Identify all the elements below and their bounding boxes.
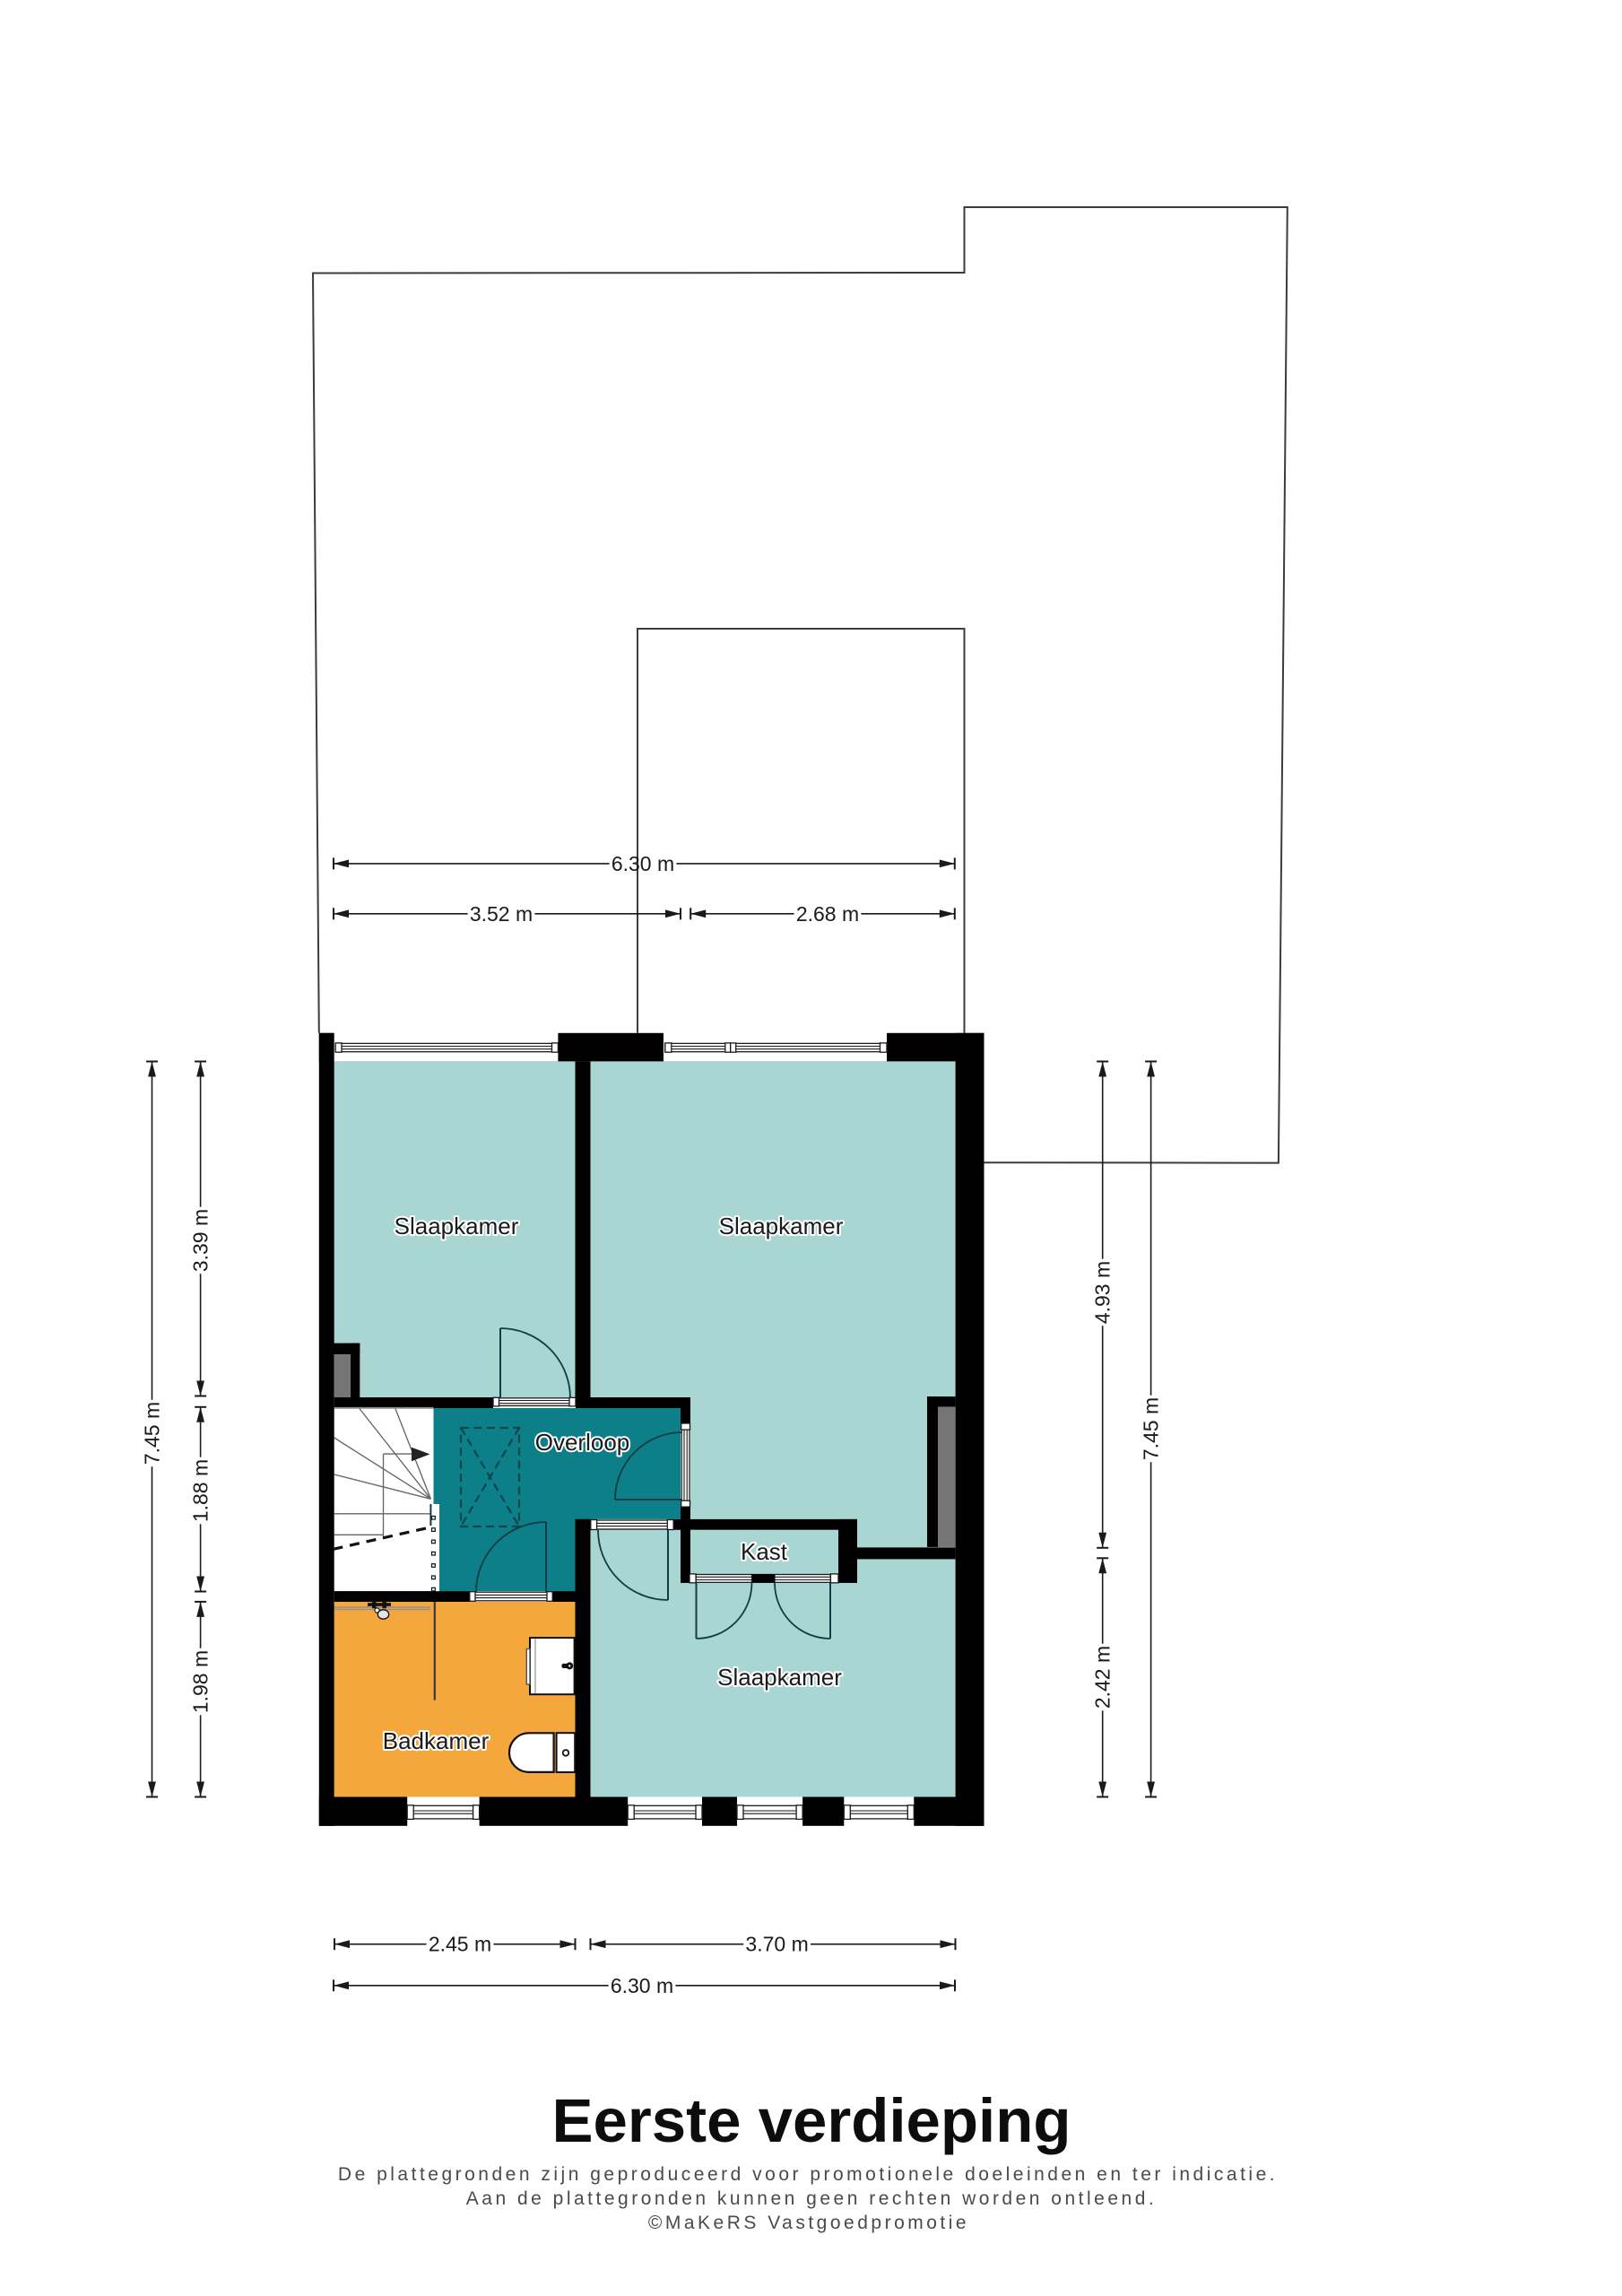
svg-text:Slaapkamer: Slaapkamer [395,1213,519,1239]
svg-text:Slaapkamer: Slaapkamer [717,1664,842,1691]
svg-text:6.30 m: 6.30 m [612,852,674,875]
svg-text:1.88 m: 1.88 m [189,1459,213,1522]
svg-text:1.98 m: 1.98 m [189,1650,213,1713]
svg-text:2.68 m: 2.68 m [796,902,859,926]
svg-text:6.30 m: 6.30 m [611,1974,673,1997]
svg-text:3.52 m: 3.52 m [470,902,533,926]
svg-text:2.42 m: 2.42 m [1091,1646,1115,1709]
svg-text:©MaKeRS Vastgoedpromotie: ©MaKeRS Vastgoedpromotie [648,2213,969,2233]
svg-text:3.70 m: 3.70 m [745,1933,808,1956]
svg-text:De plattegronden zijn geproduc: De plattegronden zijn geproduceerd voor … [338,2164,1278,2185]
svg-text:4.93 m: 4.93 m [1091,1261,1115,1324]
svg-text:7.45 m: 7.45 m [1140,1397,1163,1460]
svg-text:Aan de plattegronden kunnen ge: Aan de plattegronden kunnen geen rechten… [466,2188,1157,2209]
svg-text:7.45 m: 7.45 m [141,1402,164,1465]
svg-text:3.39 m: 3.39 m [189,1209,213,1272]
svg-text:Overloop: Overloop [535,1429,630,1456]
svg-text:2.45 m: 2.45 m [429,1933,491,1956]
svg-text:Slaapkamer: Slaapkamer [719,1213,844,1239]
svg-text:Badkamer: Badkamer [383,1727,490,1754]
svg-text:Kast: Kast [741,1538,788,1565]
svg-text:Eerste verdieping: Eerste verdieping [551,2086,1071,2155]
